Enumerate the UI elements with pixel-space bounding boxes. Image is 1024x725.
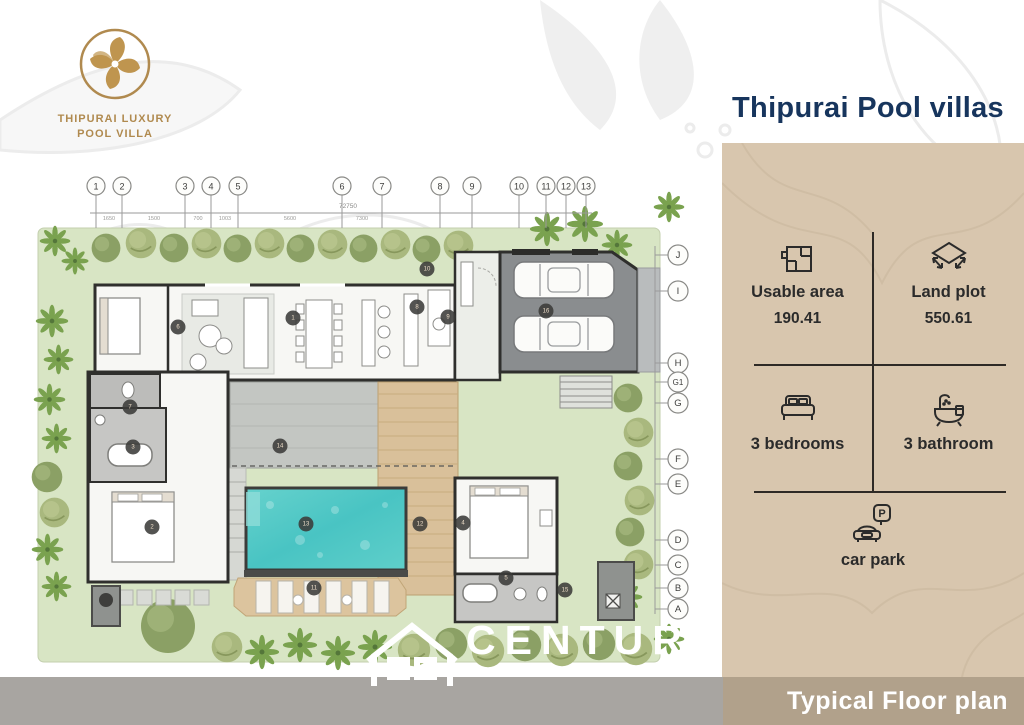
- svg-text:3: 3: [182, 182, 187, 192]
- patio: [230, 382, 378, 468]
- bath-icon: [927, 391, 971, 429]
- building-left-wing: [88, 372, 228, 582]
- svg-text:C: C: [675, 560, 682, 571]
- garage-steps: [560, 376, 612, 408]
- svg-text:15: 15: [562, 588, 569, 594]
- svg-text:9: 9: [469, 182, 474, 192]
- svg-text:I: I: [677, 286, 680, 297]
- svg-text:P: P: [878, 508, 885, 520]
- brand-name: THIPURAI LUXURY POOL VILLA: [40, 112, 190, 142]
- svg-text:G1: G1: [673, 378, 684, 387]
- svg-text:1003: 1003: [219, 216, 231, 222]
- svg-text:H: H: [675, 358, 682, 369]
- svg-text:13: 13: [581, 182, 591, 192]
- svg-text:4: 4: [208, 182, 213, 192]
- stepping-stones: [118, 590, 209, 605]
- svg-text:5600: 5600: [284, 216, 296, 222]
- house-icon: [366, 618, 458, 690]
- panel-divider-1: [754, 364, 1006, 366]
- brand-flower-icon: [76, 25, 154, 103]
- century-brand-text: CENTURY: [466, 618, 747, 662]
- panel-divider-2: [754, 491, 1006, 493]
- svg-text:14: 14: [277, 444, 284, 450]
- svg-text:700: 700: [193, 216, 202, 222]
- car-park-icon: P: [850, 503, 896, 545]
- svg-text:1: 1: [93, 182, 98, 192]
- flyer-page: THIPURAI LUXURY POOL VILLA Thipurai Pool…: [0, 0, 1024, 725]
- svg-text:F: F: [675, 454, 681, 465]
- spec-land-plot: Land plot 550.61: [873, 239, 1024, 328]
- svg-text:B: B: [675, 583, 681, 594]
- svg-text:J: J: [676, 250, 681, 261]
- floorplan-icon: [779, 239, 817, 277]
- swimming-pool: [244, 488, 408, 577]
- century-subtitle: PRO REAL ESTATE HUA HIN: [466, 664, 747, 679]
- spec-panel: Usable area 190.41 Land plot 550.61: [722, 143, 1024, 677]
- svg-text:E: E: [675, 479, 681, 490]
- svg-text:12: 12: [561, 182, 571, 192]
- spec-bedrooms: 3 bedrooms: [722, 391, 873, 454]
- svg-text:10: 10: [424, 267, 431, 273]
- svg-text:G: G: [674, 398, 681, 409]
- svg-text:2: 2: [119, 182, 124, 192]
- spec-usable-area: Usable area 190.41: [722, 239, 873, 328]
- caption-text: Typical Floor plan: [787, 687, 1008, 716]
- svg-text:72750: 72750: [339, 203, 357, 210]
- svg-text:7300: 7300: [356, 216, 368, 222]
- svg-text:10: 10: [514, 182, 524, 192]
- svg-text:5: 5: [235, 182, 240, 192]
- svg-text:12: 12: [417, 522, 424, 528]
- svg-text:A: A: [675, 604, 682, 615]
- svg-text:8: 8: [437, 182, 442, 192]
- building-bedroom4: [455, 478, 557, 622]
- land-plot-icon: [928, 239, 970, 277]
- svg-text:11: 11: [311, 586, 318, 592]
- svg-text:1500: 1500: [148, 216, 160, 222]
- building-main-wing: [95, 285, 455, 380]
- svg-text:D: D: [675, 535, 682, 546]
- page-title: Thipurai Pool villas: [722, 92, 1014, 125]
- caption-bar: Typical Floor plan: [723, 677, 1024, 725]
- garage: [500, 249, 660, 372]
- bed-icon: [776, 391, 820, 429]
- century-watermark: CENTURY PRO REAL ESTATE HUA HIN: [366, 618, 747, 690]
- svg-text:1650: 1650: [103, 216, 115, 222]
- svg-text:11: 11: [541, 182, 550, 192]
- brand-logo: THIPURAI LUXURY POOL VILLA: [40, 25, 190, 142]
- spec-car-park: P car park: [722, 503, 1024, 570]
- spec-bathrooms: 3 bathroom: [873, 391, 1024, 454]
- svg-text:6: 6: [339, 182, 344, 192]
- svg-text:7: 7: [379, 182, 384, 192]
- svg-text:13: 13: [303, 522, 310, 528]
- svg-text:16: 16: [543, 309, 550, 315]
